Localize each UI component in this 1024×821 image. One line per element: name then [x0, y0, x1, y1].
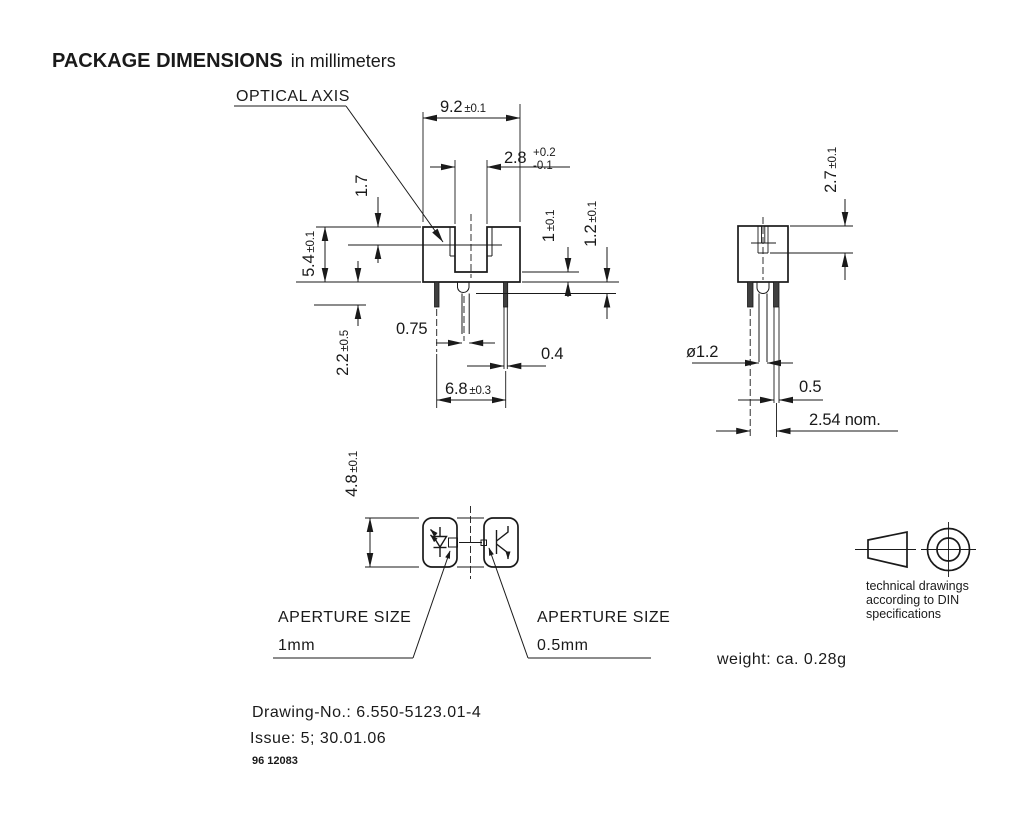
dim-side-boss-diameter: ø1.2 [686, 343, 793, 363]
detector-tower-outline [484, 518, 518, 567]
dim-front-axis-from-top: 1.7 [353, 175, 378, 263]
page-title: PACKAGE DIMENSIONSin millimeters [52, 50, 396, 72]
led-symbol [431, 527, 447, 557]
weight-note: weight: ca. 0.28g [716, 651, 846, 668]
leader-line [489, 548, 528, 658]
projection-symbol: technical drawings according to DIN spec… [855, 522, 976, 621]
dim-text: 9.2±0.1 [440, 98, 486, 116]
din-note-line3: specifications [866, 607, 941, 621]
dim-tol-plus: +0.2 [533, 147, 556, 159]
dim-text: 2.54 nom. [809, 411, 881, 429]
front-lead [748, 282, 754, 307]
aperture-right-size: 0.5mm [537, 637, 588, 654]
aperture-recess-edges [450, 227, 492, 256]
package-dimensions-drawing: PACKAGE DIMENSIONSin millimeters OPTICAL… [0, 0, 1024, 821]
dim-text: 2.7±0.1 [822, 147, 840, 193]
right-lead [504, 282, 508, 307]
dim-text: 4.8±0.1 [343, 451, 361, 497]
dim-text: 2.8 [504, 149, 526, 167]
dim-side-lead-pitch: 2.54 nom. [716, 411, 898, 431]
title-block: Drawing-No.: 6.550-5123.01-4 Issue: 5; 3… [250, 704, 481, 767]
side-view: 2.7±0.1 ø1.2 0.5 2.54 nom. [686, 147, 898, 437]
dim-tol-minus: -0.1 [533, 160, 553, 172]
doc-code: 96 12083 [252, 755, 298, 767]
leader-line [346, 106, 443, 242]
aperture-callout-left: APERTURE SIZE 1mm [273, 551, 450, 658]
dim-front-center-lead: 0.75 [396, 320, 495, 343]
optical-axis-label: OPTICAL AXIS [236, 88, 350, 105]
drawing-number: Drawing-No.: 6.550-5123.01-4 [252, 704, 481, 721]
dim-bottom-depth: 4.8±0.1 [343, 451, 419, 567]
front-body-outline [423, 227, 520, 282]
bottom-view: 4.8±0.1 APERTURE SIZE 1mm APERTURE SIZE … [273, 451, 670, 658]
aperture-left-size: 1mm [278, 637, 315, 654]
aperture-left-label: APERTURE SIZE [278, 609, 411, 626]
dim-text: 1.7 [353, 175, 371, 197]
din-note-line2: according to DIN [866, 593, 959, 607]
center-boss [458, 282, 470, 293]
issue-line: Issue: 5; 30.01.06 [250, 730, 386, 747]
aperture-edges [751, 226, 776, 253]
optical-axis-callout: OPTICAL AXIS [234, 88, 443, 242]
aperture-right-label: APERTURE SIZE [537, 609, 670, 626]
dim-text: 6.8±0.3 [445, 380, 491, 398]
front-view: 9.2±0.1 2.8 +0.2 -0.1 1.7 5.4±0.1 [296, 98, 619, 408]
emitter-tower-outline [423, 518, 457, 567]
dim-text: 0.5 [799, 378, 821, 396]
dim-text: ø1.2 [686, 343, 718, 361]
dim-text: 5.4±0.1 [300, 231, 318, 277]
dim-text: 1±0.1 [540, 210, 558, 242]
center-boss [757, 282, 769, 294]
technical-drawing-sheet: PACKAGE DIMENSIONSin millimeters OPTICAL… [0, 0, 1024, 821]
rear-lead [774, 282, 780, 307]
phototransistor-symbol [497, 526, 509, 559]
left-lead [435, 282, 440, 307]
dim-text: 2.2±0.5 [334, 330, 352, 376]
dim-side-lead-thickness: 0.5 [738, 378, 823, 400]
dim-text: 0.4 [541, 345, 563, 363]
dim-front-standoff: 2.2±0.5 [314, 261, 366, 376]
din-note-line1: technical drawings [866, 579, 969, 593]
dim-text: 0.75 [396, 320, 427, 338]
dim-front-lead-span: 6.8±0.3 [437, 354, 506, 408]
dim-front-slot-floor: 1±0.1 [522, 210, 619, 297]
dim-front-outer-lead: 0.4 [467, 345, 563, 366]
dim-side-aperture-depth: 2.7±0.1 [770, 147, 853, 280]
dim-text: 1.2±0.1 [582, 201, 600, 247]
